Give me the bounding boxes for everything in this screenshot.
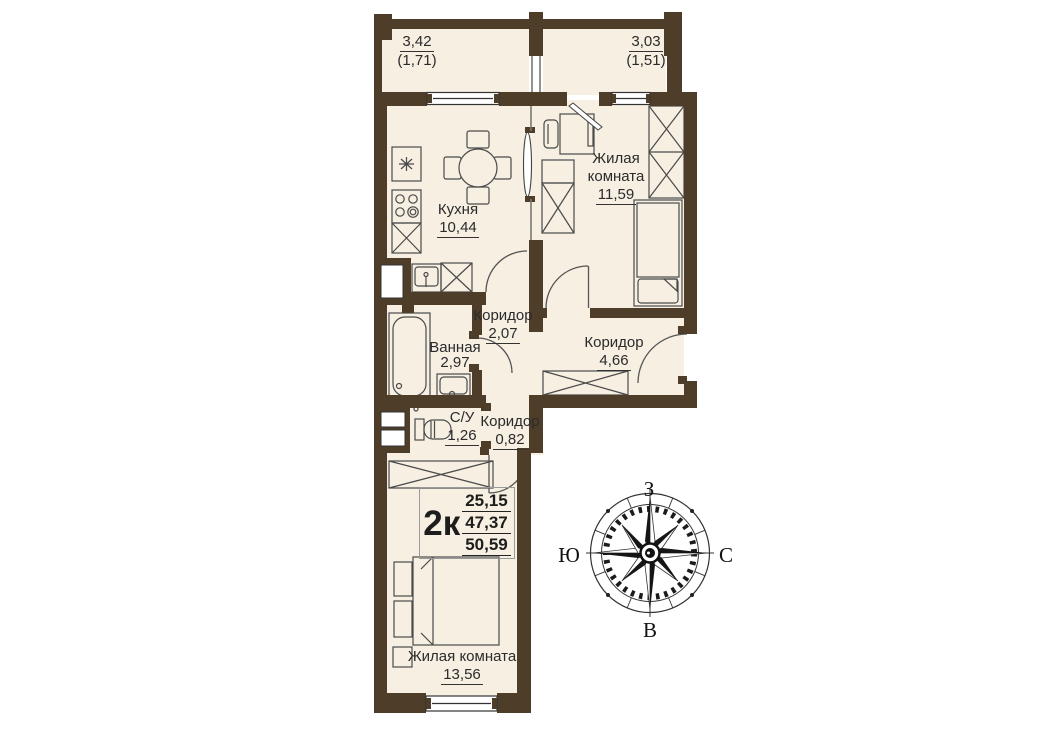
kitchen-window bbox=[427, 93, 499, 105]
area-total: 50,59 bbox=[462, 534, 511, 556]
apartment-info-box: 2к 25,15 47,37 50,59 bbox=[419, 487, 515, 559]
room1-window bbox=[612, 93, 650, 105]
wc-name: С/У bbox=[450, 409, 475, 427]
label-balcony-right: 3,03 (1,51) bbox=[607, 33, 685, 70]
label-living-room-1: Жилая комната 11,59 bbox=[577, 150, 655, 205]
living-room-1-area: 11,59 bbox=[596, 186, 636, 205]
kitchen-name: Кухня bbox=[438, 201, 478, 219]
compass-label-west: З bbox=[636, 477, 662, 501]
room2-window bbox=[426, 696, 497, 711]
compass-star bbox=[593, 496, 707, 610]
label-corridor-3: Коридор 0,82 bbox=[478, 413, 542, 450]
label-living-room-2: Жилая комната 13,56 bbox=[400, 648, 524, 685]
wc-area: 1,26 bbox=[445, 427, 478, 446]
corridor-1-name: Коридор bbox=[473, 307, 532, 325]
label-corridor-2: Коридор 4,66 bbox=[576, 334, 652, 371]
apartment-areas: 25,15 47,37 50,59 bbox=[462, 490, 511, 556]
label-balcony-left: 3,42 (1,71) bbox=[377, 33, 457, 70]
area-living: 25,15 bbox=[462, 490, 511, 512]
living-room-2-area: 13,56 bbox=[441, 666, 483, 685]
bathroom-name: Ванная bbox=[429, 340, 480, 355]
compass-label-north: С bbox=[713, 543, 739, 567]
area-apartment: 47,37 bbox=[462, 512, 511, 534]
label-kitchen: Кухня 10,44 bbox=[408, 201, 508, 238]
balcony-right-area-coef: (1,51) bbox=[626, 52, 665, 70]
balcony-left-area-coef: (1,71) bbox=[397, 52, 436, 70]
kitchen-door-leaf bbox=[524, 133, 532, 197]
corridor-3-name: Коридор bbox=[480, 413, 539, 431]
floor-plan-page: 3,42 (1,71) 3,03 (1,51) Кухня 10,44 Жила… bbox=[0, 0, 1052, 744]
compass-label-east: В bbox=[637, 618, 663, 642]
corridor-2-name: Коридор bbox=[584, 334, 643, 352]
living-room-1-name: Жилая комната bbox=[577, 150, 655, 186]
floor-plan-drawing bbox=[0, 0, 1052, 744]
apartment-type: 2к bbox=[423, 506, 460, 541]
label-bathroom: Ванная 2,97 bbox=[417, 340, 493, 370]
compass-rose bbox=[586, 489, 714, 617]
bathroom-area: 2,97 bbox=[440, 355, 469, 370]
kitchen-area: 10,44 bbox=[437, 219, 479, 238]
corridor-2-area: 4,66 bbox=[597, 352, 630, 371]
corridor-3-area: 0,82 bbox=[493, 431, 526, 450]
compass-label-south: Ю bbox=[556, 543, 582, 567]
balcony-left-area: 3,42 bbox=[400, 33, 433, 52]
balcony-right-area: 3,03 bbox=[629, 33, 662, 52]
living-room-2-name: Жилая комната bbox=[408, 648, 516, 666]
